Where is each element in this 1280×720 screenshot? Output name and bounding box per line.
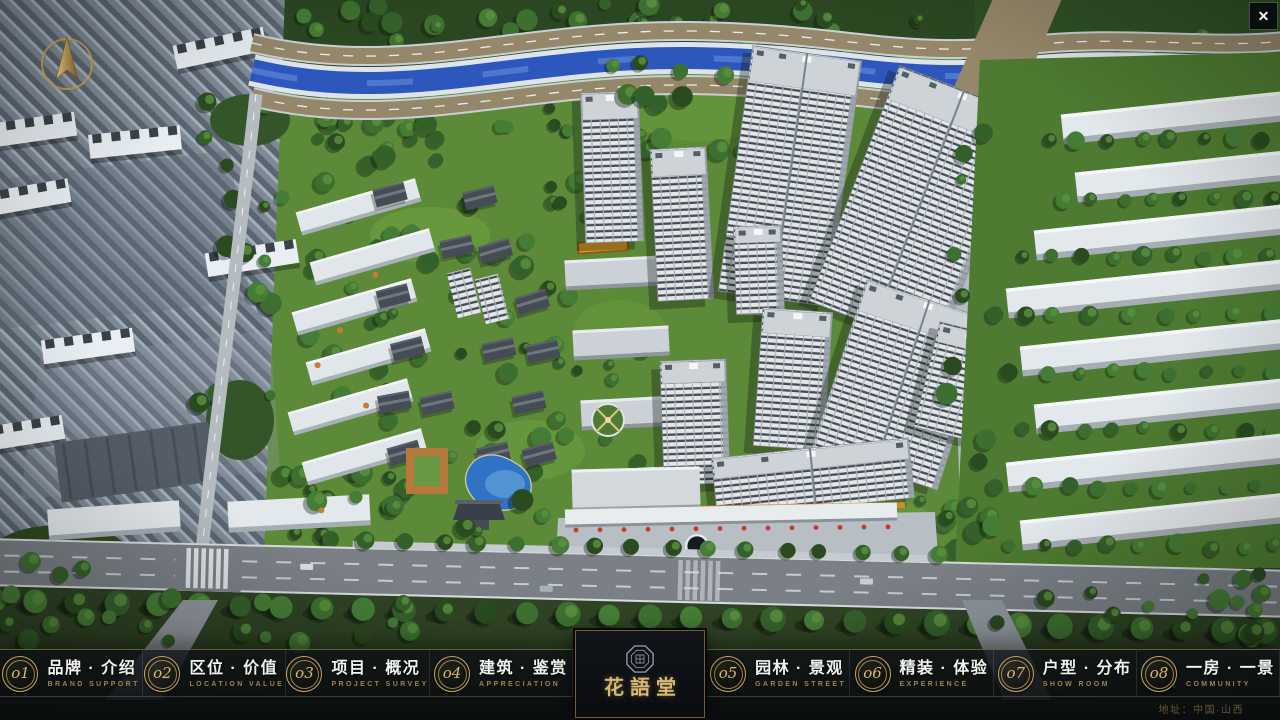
masterplan-render[interactable] bbox=[0, 0, 1280, 720]
address-text: 地址：中国·山西 bbox=[1159, 701, 1244, 716]
nav-item-03[interactable]: o3 项目 · 概况 PROJECT SURVEY bbox=[286, 650, 429, 696]
nav-number-badge: o6 bbox=[855, 656, 891, 692]
nav-item-08[interactable]: o8 一房 · 一景 COMMUNITY bbox=[1137, 650, 1280, 696]
nav-item-label: 区位 · 价值 bbox=[189, 660, 278, 678]
nav-number-badge: o2 bbox=[144, 656, 180, 692]
nav-item-02[interactable]: o2 区位 · 价值 LOCATION VALUE bbox=[143, 650, 286, 696]
nav-group-left: o1 品牌 · 介绍 BRAND SUPPORT o2 区位 · 价值 LOCA… bbox=[0, 650, 573, 696]
logo-name: 花語堂 bbox=[598, 676, 682, 698]
nav-number-badge: o5 bbox=[710, 656, 746, 692]
logo-panel[interactable]: 花語堂 · · · · · · · · · · bbox=[575, 630, 705, 718]
bottom-nav-bar: o1 品牌 · 介绍 BRAND SUPPORT o2 区位 · 价值 LOCA… bbox=[0, 649, 1280, 720]
nav-number-badge: o1 bbox=[2, 656, 38, 692]
nav-item-subtitle: APPRECIATION bbox=[479, 681, 560, 688]
nav-item-label: 园林 · 景观 bbox=[755, 660, 844, 678]
nav-item-subtitle: COMMUNITY bbox=[1186, 681, 1251, 688]
nav-item-label: 精装 · 体验 bbox=[900, 660, 989, 678]
nav-item-05[interactable]: o5 园林 · 景观 GARDEN STREET bbox=[707, 650, 850, 696]
nav-item-06[interactable]: o6 精装 · 体验 EXPERIENCE bbox=[850, 650, 993, 696]
nav-item-subtitle: SHOW ROOM bbox=[1043, 681, 1110, 688]
nav-number-badge: o4 bbox=[434, 656, 470, 692]
logo-subtitle: · · · · · · · · · · bbox=[597, 700, 683, 705]
nav-item-label: 一房 · 一景 bbox=[1186, 660, 1275, 678]
nav-number-badge: o7 bbox=[998, 656, 1034, 692]
presentation-window: ✕ o1 品牌 · 介绍 BRAND SUPPORT o2 区位 · 价值 LO… bbox=[0, 0, 1280, 720]
seal-icon bbox=[625, 644, 655, 674]
nav-item-label: 品牌 · 介绍 bbox=[47, 660, 136, 678]
nav-item-subtitle: EXPERIENCE bbox=[900, 681, 969, 688]
nav-item-label: 项目 · 概况 bbox=[331, 660, 420, 678]
nav-item-subtitle: PROJECT SURVEY bbox=[331, 681, 428, 688]
nav-number-badge: o8 bbox=[1141, 656, 1177, 692]
nav-item-label: 户型 · 分布 bbox=[1043, 660, 1132, 678]
nav-item-04[interactable]: o4 建筑 · 鉴赏 APPRECIATION bbox=[430, 650, 573, 696]
nav-item-subtitle: BRAND SUPPORT bbox=[47, 681, 139, 688]
nav-item-label: 建筑 · 鉴赏 bbox=[479, 660, 568, 678]
close-button[interactable]: ✕ bbox=[1249, 2, 1278, 30]
vignette bbox=[0, 0, 1280, 720]
nav-item-subtitle: GARDEN STREET bbox=[755, 681, 846, 688]
nav-group-right: o5 园林 · 景观 GARDEN STREET o6 精装 · 体验 EXPE… bbox=[707, 650, 1280, 696]
nav-item-07[interactable]: o7 户型 · 分布 SHOW ROOM bbox=[994, 650, 1137, 696]
nav-item-subtitle: LOCATION VALUE bbox=[189, 681, 284, 688]
nav-number-badge: o3 bbox=[286, 656, 322, 692]
nav-item-01[interactable]: o1 品牌 · 介绍 BRAND SUPPORT bbox=[0, 650, 143, 696]
